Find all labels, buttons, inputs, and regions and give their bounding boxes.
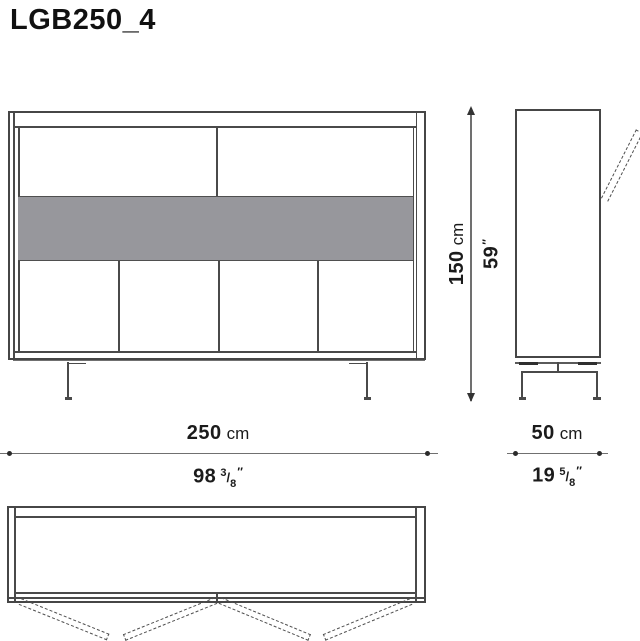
side-open-door-dashed [601,129,640,201]
width-dim-endpoint-right [425,451,430,456]
plan-view [7,506,426,603]
plan-left-panel-line [14,508,16,601]
front-top-door-divider [216,126,218,197]
depth-dim-endpoint-right [597,451,602,456]
front-left-panel-line [13,113,15,358]
side-leg-front-foot [519,397,527,400]
depth-cm-label: 50cm [477,421,637,447]
technical-drawing: LGB250_4 150cm 59″ 250cm [0,0,640,640]
width-dim-endpoint-left [7,451,12,456]
plan-door-swing-3 [219,597,311,641]
front-right-leg [366,362,368,398]
front-bottom-door-divider-2 [218,261,220,351]
side-leg-back [596,371,598,400]
side-leg-front [521,371,523,400]
page-title: LGB250_4 [10,4,156,37]
side-view [515,109,601,358]
front-bottom-door-divider-1 [118,261,120,351]
plan-door-swing-2 [123,597,217,641]
front-open-shelf-band [18,196,413,261]
side-bracket-right [578,362,597,365]
height-cm-label: 150cm [445,184,469,324]
front-left-leg [67,362,69,398]
height-dimension-line [470,108,472,401]
front-right-leg-bracket [349,363,367,365]
side-leg-back-foot [593,397,601,400]
front-left-leg-bracket [68,363,86,365]
plan-door-swing-1 [19,598,110,640]
front-top-doors-top-line [13,126,417,128]
plan-back-edge-line [14,516,417,518]
side-leg-frame-bar [521,371,598,373]
depth-inch-label: 195/8″ [477,459,637,494]
front-left-leg-foot [65,397,73,400]
depth-dimension-line [507,453,608,454]
plan-door-swing-4 [323,598,413,640]
front-underside-line [13,360,425,361]
width-cm-label: 250cm [118,421,318,447]
front-right-panel-line [416,113,418,358]
height-arrow-down-icon [467,393,475,402]
side-bracket-left [519,362,538,365]
width-inch-label: 983/8″ [118,460,318,495]
height-arrow-up-icon [467,106,475,115]
width-dimension-line [0,453,438,454]
front-bottom-doors-bottom-line [13,351,417,353]
front-view [8,111,426,360]
height-inch-label: 59″ [475,204,497,304]
front-right-leg-foot [364,397,372,400]
plan-right-panel-line [415,508,417,601]
depth-dim-endpoint-left [513,451,518,456]
plan-front-center-divider [216,592,218,601]
front-bottom-door-divider-3 [317,261,319,351]
